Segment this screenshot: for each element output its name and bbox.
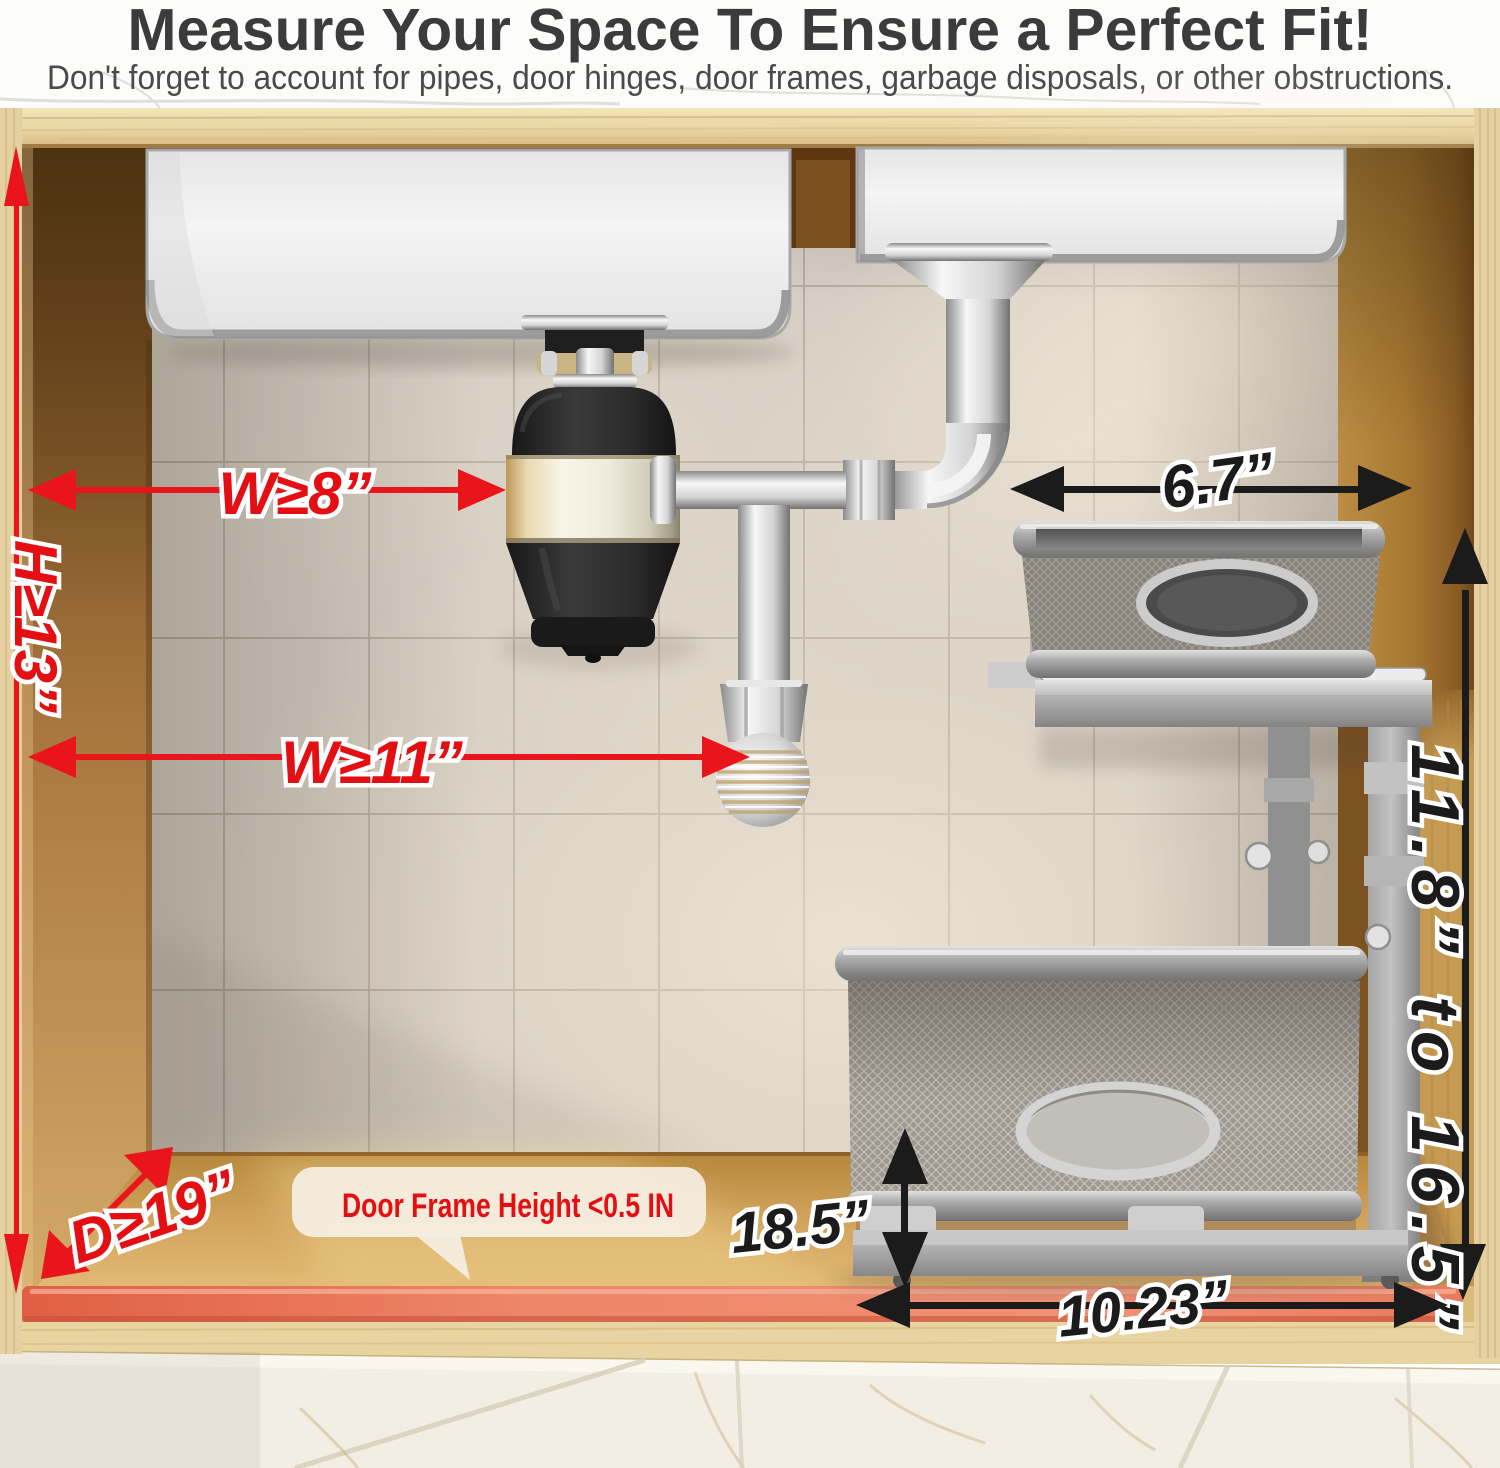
svg-text:11.8” to 16.5”: 11.8” to 16.5” bbox=[1397, 744, 1473, 1342]
svg-text:Door Frame Height <0.5 IN: Door Frame Height <0.5 IN bbox=[342, 1187, 674, 1225]
svg-text:W≥8”: W≥8” bbox=[219, 460, 372, 527]
svg-text:W≥11”: W≥11” bbox=[281, 729, 463, 796]
svg-text:H≥13”: H≥13” bbox=[2, 540, 69, 713]
